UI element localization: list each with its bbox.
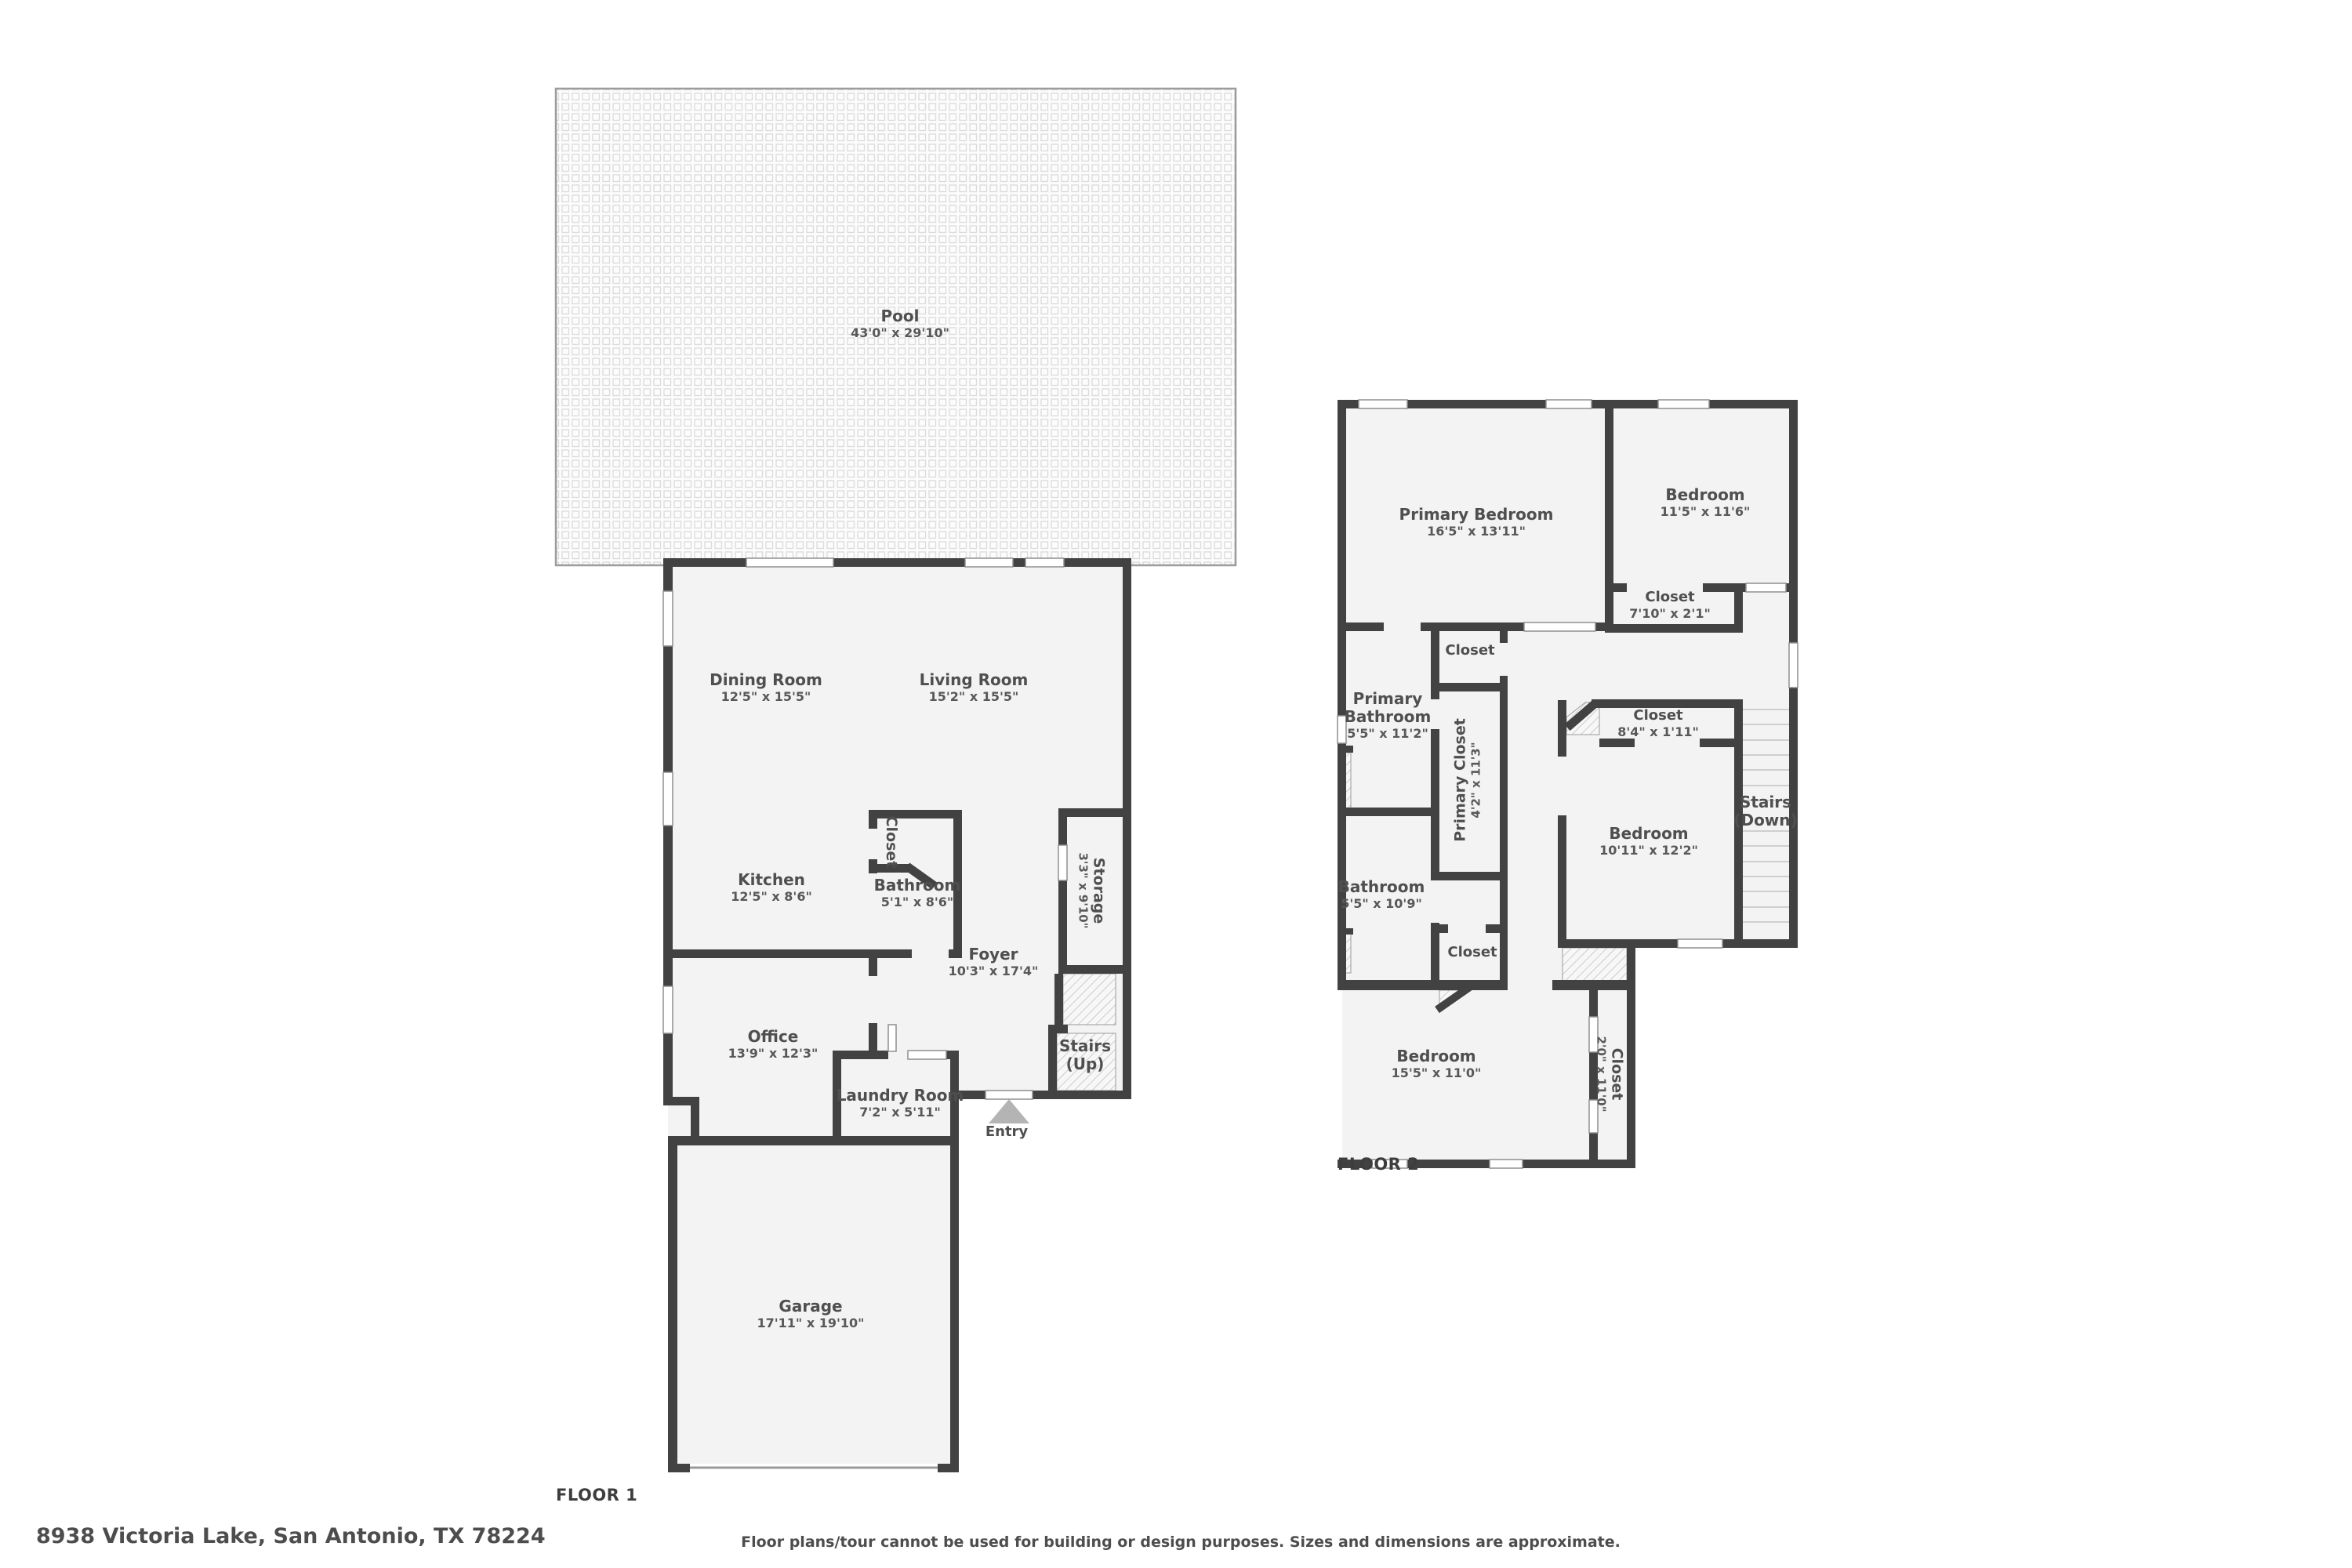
room-label-storage: Storage 3'3" x 9'10" [1076, 852, 1108, 928]
room-label-closet-small: Closet [1445, 641, 1494, 659]
room-label-dining-room: Dining Room 12'5" x 15'5" [710, 671, 822, 705]
room-label-primary-bedroom: Primary Bedroom 16'5" x 13'11" [1399, 506, 1554, 539]
room-label-closet-710: Closet 7'10" x 2'1" [1629, 588, 1711, 622]
room-label-bathroom-f2: Bathroom 5'5" x 10'9" [1338, 878, 1425, 912]
floor-plan-canvas [0, 0, 2352, 1568]
room-label-laundry-room: Laundry Room 7'2" x 5'11" [837, 1087, 964, 1120]
room-label-office: Office 13'9" x 12'3" [728, 1028, 818, 1062]
room-label-closet-20: Closet 2'0" x 11'0" [1594, 1036, 1626, 1112]
floor1-label: FLOOR 1 [556, 1486, 637, 1504]
room-label-stairs-down: Stairs (Down) [1733, 793, 1797, 829]
room-label-garage: Garage 17'11" x 19'10" [757, 1298, 865, 1331]
room-label-foyer: Foyer 10'3" x 17'4" [949, 946, 1039, 979]
room-label-bedroom-top-right: Bedroom 11'5" x 11'6" [1661, 486, 1751, 520]
room-label-pool: Pool 43'0" x 29'10" [851, 307, 949, 341]
property-address: 8938 Victoria Lake, San Antonio, TX 7822… [36, 1524, 546, 1548]
room-label-closet-84: Closet 8'4" x 1'11" [1617, 706, 1699, 740]
room-label-bedroom-1011: Bedroom 10'11" x 12'2" [1599, 825, 1698, 858]
disclaimer-text: Floor plans/tour cannot be used for buil… [741, 1534, 1621, 1551]
room-label-primary-bathroom: Primary Bathroom 5'5" x 11'2" [1345, 690, 1432, 742]
room-label-living-room: Living Room 15'2" x 15'5" [920, 671, 1029, 705]
room-label-stairs-up: Stairs (Up) [1059, 1037, 1111, 1073]
room-label-closet-f1: Closet [883, 816, 900, 869]
room-label-primary-closet: Primary Closet 4'2" x 11'3" [1452, 718, 1484, 842]
floor-plan-page: { "meta": { "address": "8938 Victoria La… [0, 0, 2352, 1568]
room-label-kitchen: Kitchen 12'5" x 8'6" [731, 871, 812, 905]
entry-label: Entry [985, 1123, 1028, 1141]
room-label-bathroom-f1: Bathroom 5'1" x 8'6" [874, 877, 961, 910]
floor2-label: FLOOR 2 [1338, 1155, 1419, 1174]
room-label-bedroom-bottom: Bedroom 15'5" x 11'0" [1392, 1047, 1482, 1081]
room-label-closet-mid: Closet [1447, 943, 1497, 961]
entry-direction-icon [989, 1099, 1029, 1123]
